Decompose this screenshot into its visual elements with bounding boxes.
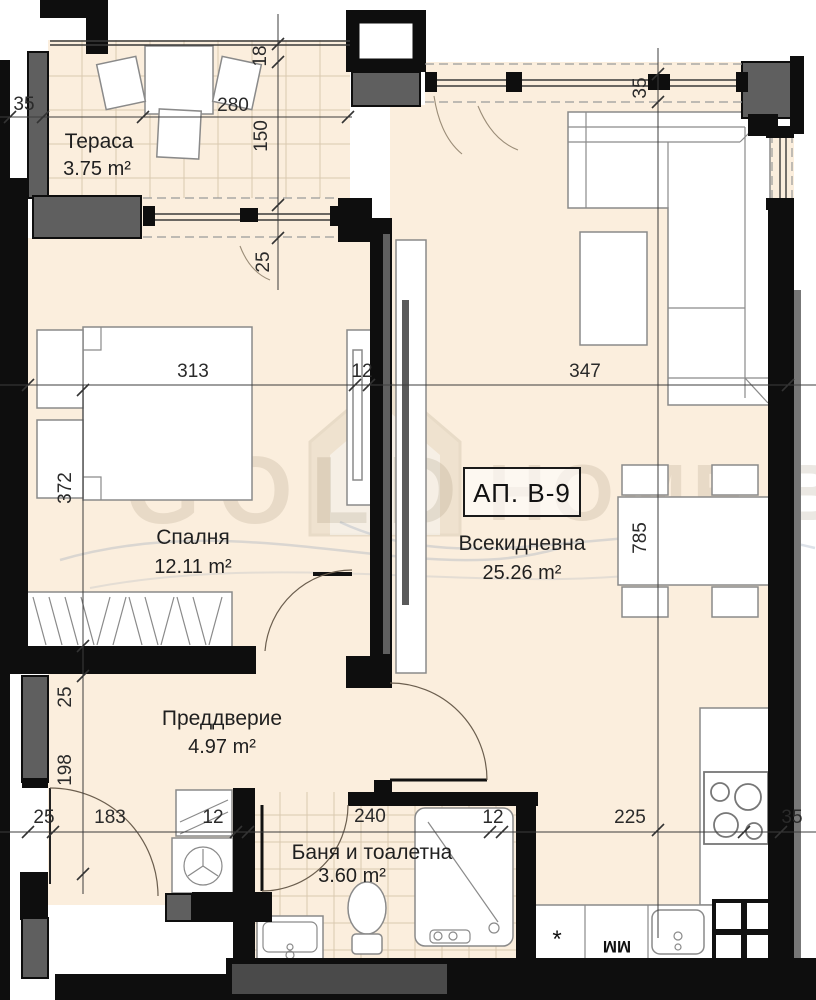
floor-plan-page: GOLD HOME.BG [0,0,816,1000]
dim-bottom-12-right: 12 [482,807,503,828]
kitchen-window-grid-icon [714,901,774,963]
terrace-left-wall [28,52,48,198]
dining-chair [712,587,758,617]
dim-living-width: 347 [569,361,601,382]
apartment-id: АП. В-9 [473,478,571,508]
bathroom-area: 3.60 m² [318,865,386,887]
dim-hall-25: 25 [55,686,76,707]
tv-cabinet [396,240,426,673]
door-hinge-block [20,872,48,920]
stove-icon [704,772,768,844]
window-post [648,74,670,90]
dim-mid-wall: 12 [351,361,372,382]
door-jamb [22,778,48,788]
window-post [240,208,258,222]
dim-bottom-12-left: 12 [202,807,223,828]
kitchen-sink-icon [652,910,704,954]
tv-icon [402,300,409,605]
living-area: 25.26 m² [483,562,562,584]
bedroom-label: Спалня [156,526,229,549]
entrance-wall [192,892,272,922]
dim-bottom-240: 240 [354,806,386,827]
right-wall-outer-liner [794,290,801,958]
dim-hall-198: 198 [55,754,76,786]
entrance-wall-column [166,894,192,921]
pier-terrace-living [338,198,372,242]
dim-terrace-width: 280 [217,95,249,116]
terrace-bottom-wall [33,196,141,238]
terrace-area: 3.75 m² [63,158,131,180]
dim-living-win-35: 35 [630,77,651,98]
terrace-chair-left [97,56,146,109]
middle-wall-liner [383,234,390,654]
bedroom-bottom-wall [0,646,256,674]
shaft-opening [358,22,414,60]
living-window-band-floor [425,62,747,107]
dim-win-18: 18 [250,45,271,66]
dining-chair [622,465,668,495]
bedroom-left-wall [0,178,28,653]
hall-outer-wall [0,653,10,1000]
hall-label: Преддверие [162,707,282,730]
dim-bottom-225: 225 [614,807,646,828]
dim-bottom-25: 25 [33,807,54,828]
toilet-icon [348,882,386,954]
coffee-table [580,232,647,345]
window-post [506,72,522,92]
bedroom-area: 12.11 m² [154,556,232,578]
window-post [330,206,342,226]
window-post [425,72,437,92]
living-label: Всекидневна [458,532,585,555]
terrace-table [145,46,213,114]
right-wall [768,206,794,958]
floor-plan-drawing: GOLD HOME.BG [0,0,816,1000]
dim-win-150: 150 [251,120,272,152]
dim-bottom-183: 183 [94,807,126,828]
washing-machine-mark: ММ [603,937,631,956]
hall-left-wall-upper [22,676,48,782]
window-post [143,206,155,226]
middle-wall-end-block [346,656,392,688]
hall-area: 4.97 m² [188,736,256,758]
shower-tub-icon [415,808,513,946]
dim-win-25: 25 [253,251,274,272]
bathroom-right-wall [516,792,536,964]
dining-chair [622,587,668,617]
bath-sink-icon [257,916,323,962]
terrace-stool [157,109,201,159]
bottom-left-wall [55,974,230,1000]
wardrobe [25,592,232,650]
washing-machine-icon [172,838,233,893]
dim-bedroom-depth: 372 [55,472,76,504]
dim-living-depth: 785 [630,522,651,554]
dining-chair [712,465,758,495]
top-right-wall-edge [790,56,804,134]
window-post [736,72,748,92]
bathroom-left-wall [233,788,255,963]
window-post [766,198,794,210]
terrace-label: Тераса [65,130,134,153]
dishwasher-mark: * [552,926,561,953]
dim-bottom-35: 35 [781,807,802,828]
dim-bedroom-width: 313 [177,361,209,382]
window-post [766,126,794,138]
bathroom-label: Баня и тоалетна [292,841,453,864]
bottom-wall-gray [232,964,447,994]
dim-terrace-wall: 35 [13,94,34,115]
top-right-column [742,62,792,118]
right-window-band-floor [770,134,794,206]
bathroom-top-wall [348,792,538,806]
shaft-column [352,72,420,106]
nightstand-top [37,330,83,408]
hall-left-wall-lower [22,918,48,978]
bed [83,327,252,500]
bathroom-jamb [374,780,392,794]
